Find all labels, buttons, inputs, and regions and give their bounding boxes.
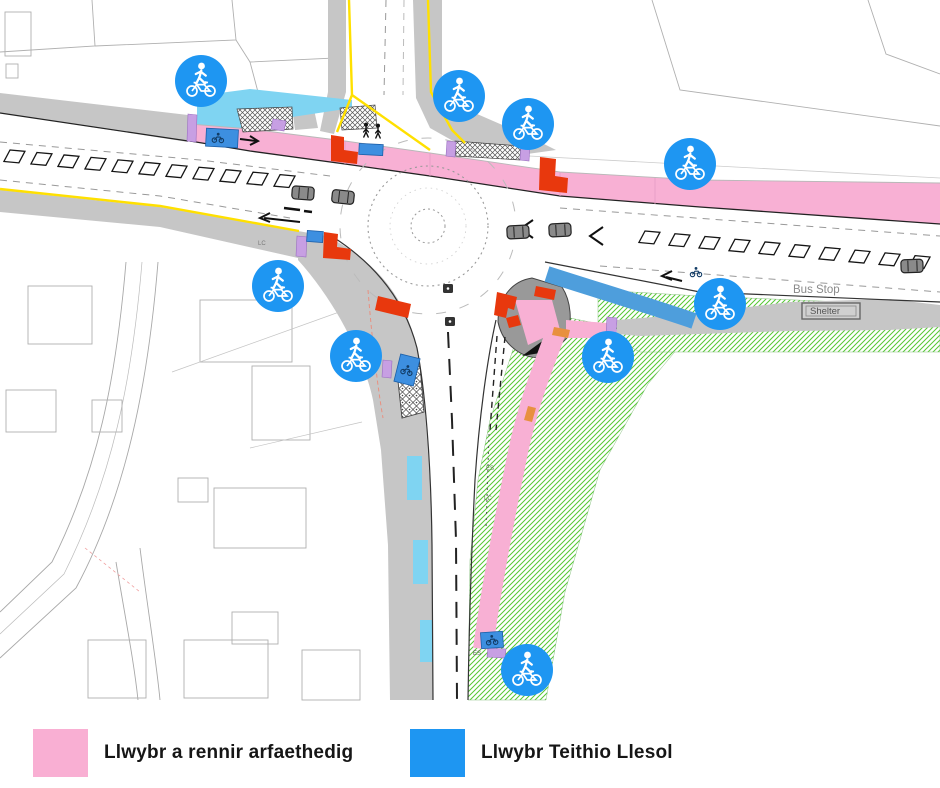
shared-use-path-icon bbox=[252, 260, 304, 312]
legend-swatch-shared-path bbox=[33, 729, 88, 777]
plan-drawing: Bus Stop Shelter LC ES LC ES bbox=[0, 0, 940, 710]
legend-item-shared-path: Llwybr a rennir arfaethedig bbox=[33, 729, 353, 777]
es-label-2: ES bbox=[473, 651, 481, 657]
es-label: ES bbox=[486, 466, 494, 472]
shared-use-path-icon bbox=[664, 138, 716, 190]
legend-item-active-travel: Llwybr Teithio Llesol bbox=[410, 729, 673, 777]
shared-use-path-icon bbox=[433, 70, 485, 122]
shared-use-path-icon bbox=[694, 278, 746, 330]
bus-stop-label: Bus Stop bbox=[793, 284, 840, 296]
shared-use-path-icon bbox=[502, 98, 554, 150]
shared-use-path-icon bbox=[582, 331, 634, 383]
shelter-label: Shelter bbox=[810, 306, 840, 317]
legend-label-active-travel: Llwybr Teithio Llesol bbox=[481, 742, 673, 764]
legend-label-shared-path: Llwybr a rennir arfaethedig bbox=[104, 742, 353, 764]
pink-shared-path-main bbox=[190, 124, 940, 224]
shared-use-path-icon bbox=[175, 55, 227, 107]
footway-west-south bbox=[0, 190, 298, 258]
legend-swatch-active-travel bbox=[410, 729, 465, 777]
legend: Llwybr a rennir arfaethedig Llwybr Teith… bbox=[0, 710, 940, 788]
lc-label: LC bbox=[258, 241, 266, 247]
shared-use-path-icon bbox=[330, 330, 382, 382]
lc-label-2: LC bbox=[484, 496, 492, 502]
sign-posts bbox=[443, 284, 455, 326]
page: Bus Stop Shelter LC ES LC ES Llwybr a re… bbox=[0, 0, 940, 788]
shared-use-path-icon bbox=[501, 644, 553, 696]
junction-plan-map: Bus Stop Shelter LC ES LC ES bbox=[0, 0, 940, 710]
